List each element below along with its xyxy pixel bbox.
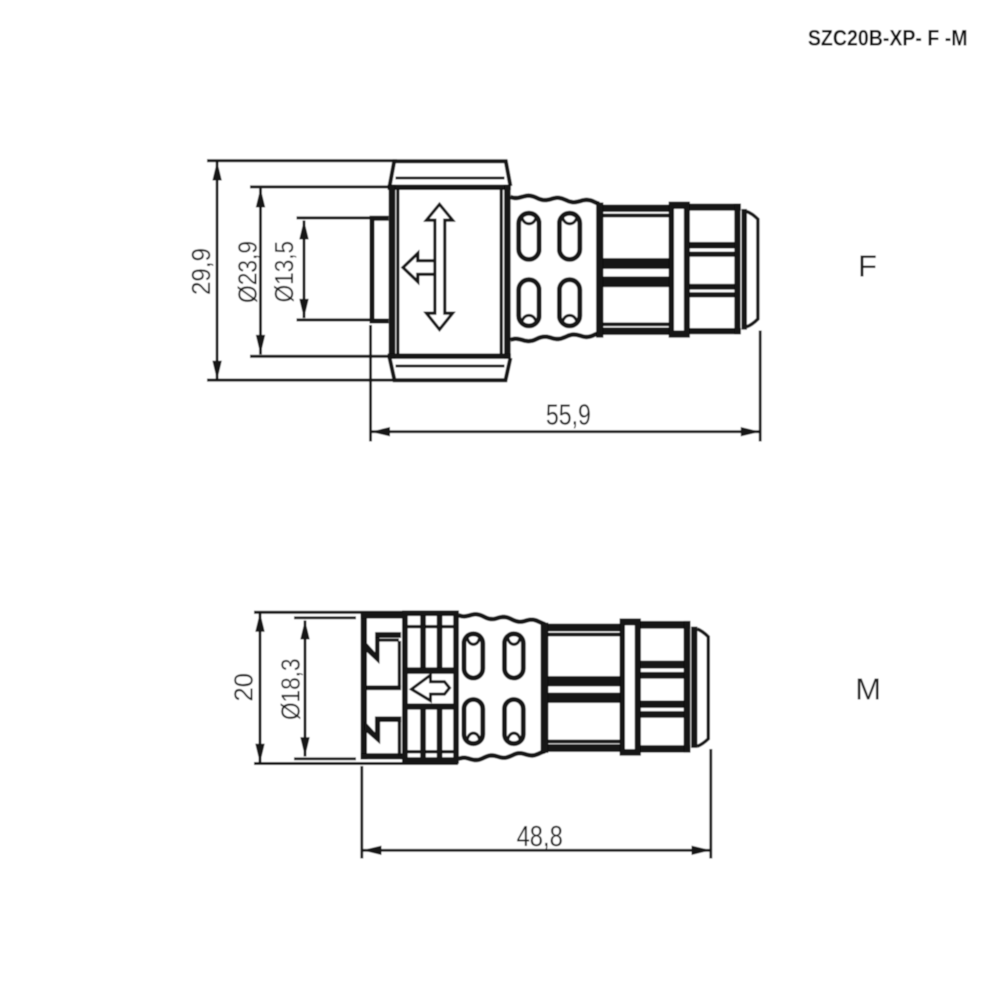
svg-text:55,9: 55,9: [546, 399, 591, 431]
svg-text:M: M: [855, 672, 881, 707]
svg-text:48,8: 48,8: [517, 821, 563, 853]
svg-text:Ø13,5: Ø13,5: [269, 241, 299, 303]
svg-text:29,9: 29,9: [186, 248, 216, 295]
svg-text:F: F: [858, 249, 877, 284]
svg-text:20: 20: [228, 673, 258, 702]
svg-text:Ø18,3: Ø18,3: [275, 659, 305, 721]
svg-text:Ø23,9: Ø23,9: [232, 241, 262, 303]
svg-text:SZC20B-XP- F -M: SZC20B-XP- F -M: [808, 25, 968, 50]
